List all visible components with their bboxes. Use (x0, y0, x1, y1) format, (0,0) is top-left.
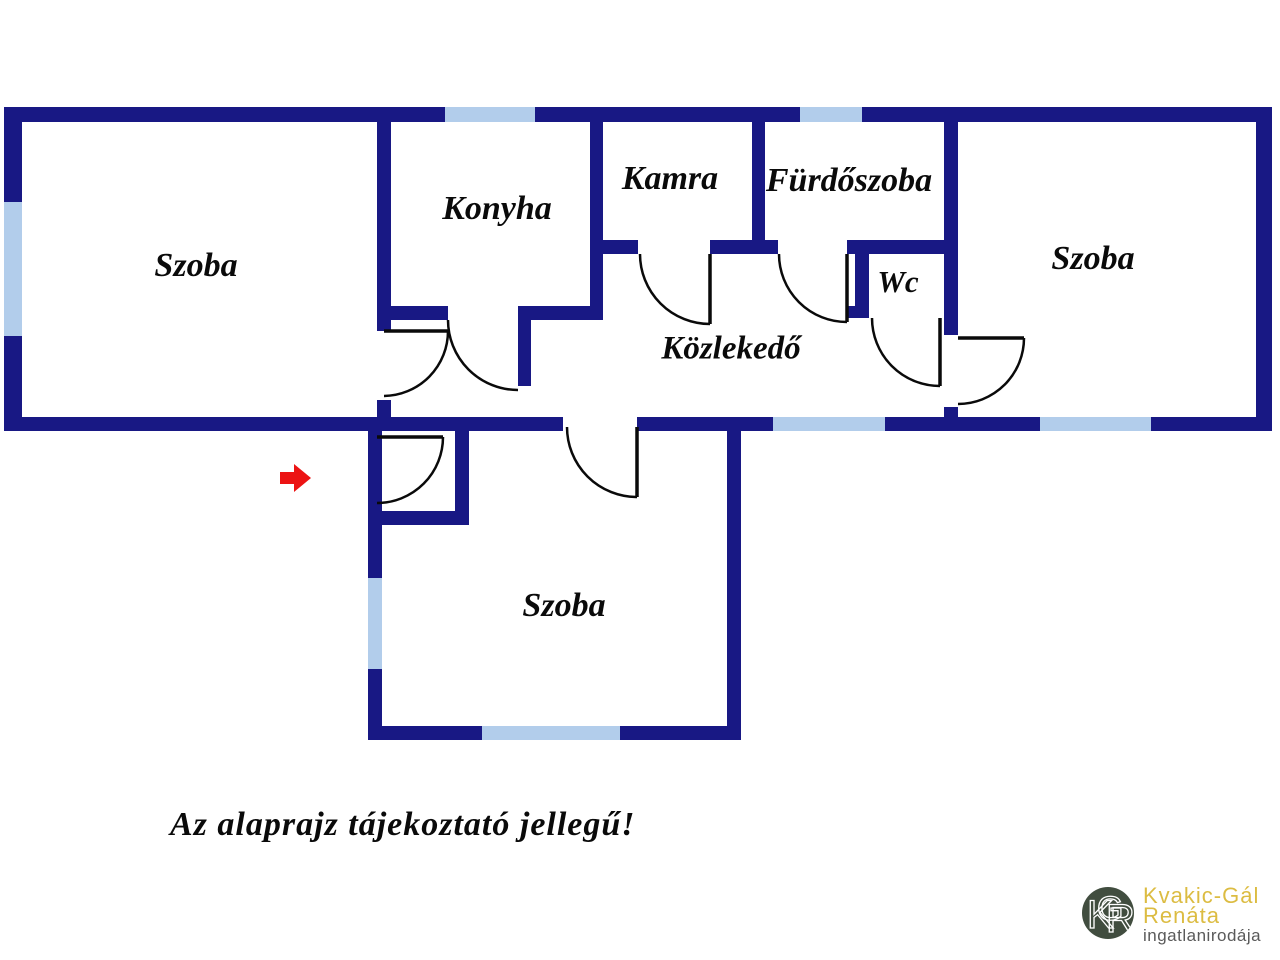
wc-door-swing-arc (872, 318, 940, 386)
doors-layer (377, 254, 1024, 503)
wall-left-outer-wall-a (4, 107, 22, 202)
szoba-right-door-swing-arc (958, 338, 1024, 404)
entrance-door-swing-arc (377, 437, 443, 503)
room-label-szoba-bottom: Szoba (522, 587, 605, 624)
wall-kamra-bottom-wall-b (710, 240, 778, 254)
window-top-furdoszoba (800, 107, 862, 122)
wall-top-wall-c (862, 107, 1272, 122)
wall-vestibule-bottom-wall (368, 511, 469, 525)
wall-vestibule-right-wall (455, 417, 469, 515)
kamra-door-swing-arc (640, 254, 710, 324)
wall-kamra-bottom-wall-a (603, 240, 638, 254)
window-bottom-szoba-low (482, 726, 620, 740)
window-left-szoba (4, 202, 22, 336)
wall-furdo-szoba-divider-b (944, 407, 958, 431)
window-bottom-szoba-left (368, 578, 382, 669)
room-label-kozlekedo: Közlekedő (660, 331, 803, 367)
floorplan-canvas: SzobaKonyhaKamraFürdőszobaWcKözlekedőSzo… (0, 0, 1280, 960)
agency-name-line2: Renáta (1143, 906, 1261, 926)
window-top-konyha (445, 107, 535, 122)
agency-subtitle: ingatlanirodája (1143, 926, 1261, 945)
room-label-konyha: Konyha (441, 190, 552, 227)
room-label-kamra: Kamra (621, 160, 718, 197)
wall-band-bottom-wall-b (637, 417, 773, 431)
wall-szoba-konyha-divider-b (377, 400, 391, 431)
room-label-szoba-right: Szoba (1051, 240, 1134, 277)
wall-band-bottom-wall-c (885, 417, 1040, 431)
szoba-bottom-door-swing-arc (567, 427, 637, 497)
wall-bottom-szoba-right (727, 417, 741, 740)
wall-konyha-kamra-divider (590, 107, 603, 320)
window-band-bottom-right (1040, 417, 1151, 431)
wall-bottom-left-wall-a (368, 431, 382, 578)
furdoszoba-door-swing-arc (779, 254, 847, 322)
wall-wc-bottom-stub (846, 306, 869, 318)
agency-logo-text: Kvakic-Gál Renáta ingatlanirodája (1143, 884, 1261, 945)
wall-konyha-door-leaf-stub (518, 320, 531, 386)
szoba-left-door-swing-arc (384, 331, 448, 396)
wall-furdo-szoba-divider-a (944, 107, 958, 335)
wall-band-bottom-wall-d (1151, 417, 1272, 431)
wall-konyha-bottom-wall-a (377, 306, 448, 320)
wall-band-bottom-wall-a (4, 417, 563, 431)
wall-right-outer-wall (1256, 107, 1272, 431)
wall-bottom-szoba-bottom-a (368, 726, 482, 740)
entrance-arrow-icon (280, 464, 311, 492)
room-labels-layer: SzobaKonyhaKamraFürdőszobaWcKözlekedőSzo… (154, 160, 1134, 624)
konyha-door-swing-arc (448, 320, 518, 390)
wall-szoba-konyha-divider-a (377, 107, 391, 331)
room-label-szoba-left: Szoba (154, 247, 237, 284)
wall-left-outer-wall-b (4, 336, 22, 431)
wall-kamra-furdo-divider (752, 107, 765, 254)
disclaimer-text: Az alaprajz tájekoztató jellegű! (170, 806, 870, 844)
monogram-letter-r: R (1106, 897, 1135, 941)
window-band-bottom-mid (773, 417, 885, 431)
agency-logo: K G R Kvakic-Gál Renáta ingatlanirodája (1080, 884, 1261, 945)
wall-bottom-szoba-bottom-b (620, 726, 741, 740)
logo-monogram: K G R (1080, 884, 1136, 942)
room-label-wc: Wc (877, 264, 919, 299)
room-label-furdoszoba: Fürdőszoba (765, 162, 932, 199)
